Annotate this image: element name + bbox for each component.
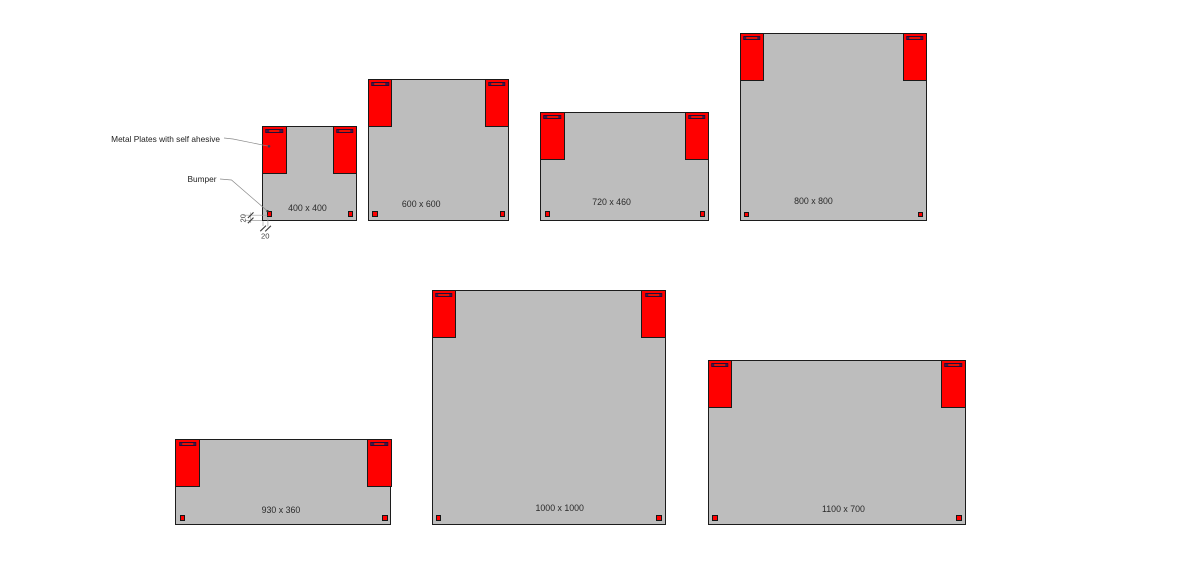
svg-text:20: 20: [261, 232, 269, 241]
svg-text:20: 20: [239, 214, 248, 222]
